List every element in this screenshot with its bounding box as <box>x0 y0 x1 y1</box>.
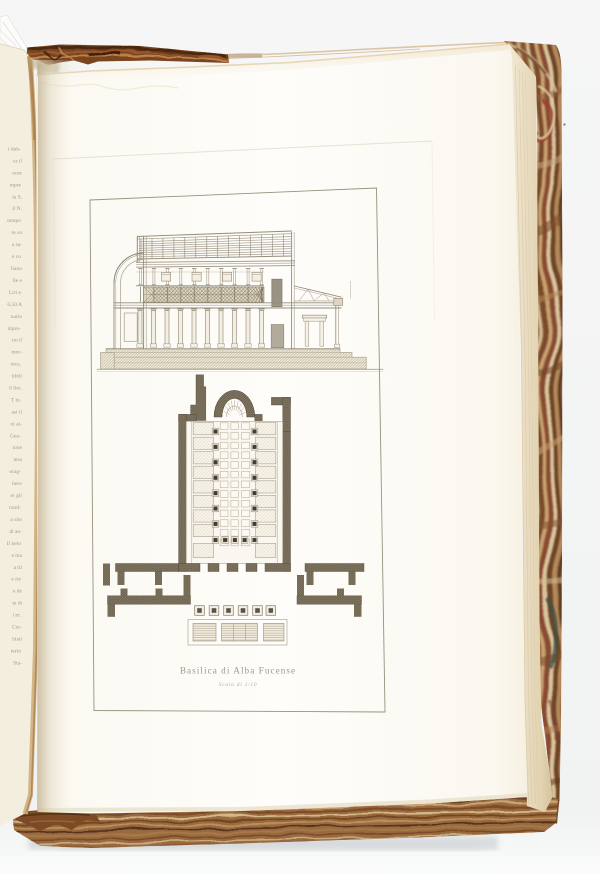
svg-text:Scala di 1/10: Scala di 1/10 <box>219 682 258 688</box>
svg-text:ca il: ca il <box>13 158 23 164</box>
svg-text:liano: liano <box>11 266 22 272</box>
svg-text:a sa-: a sa- <box>12 242 22 248</box>
svg-text:re su: re su <box>11 230 22 236</box>
svg-text:Basilica di Alba Fucense: Basilica di Alba Fucense <box>180 666 296 676</box>
svg-text:liero: liero <box>12 481 22 487</box>
svg-text:il N.: il N. <box>12 206 22 212</box>
svg-text:Cor-: Cor- <box>12 625 22 631</box>
svg-text:hiati: hiati <box>12 637 22 643</box>
svg-text:nica,: nica, <box>10 362 21 368</box>
svg-text:Gen-: Gen- <box>10 433 21 439</box>
svg-text:orag-: orag- <box>9 469 21 475</box>
svg-text:er gli: er gli <box>11 493 23 499</box>
svg-text:i dub-: i dub- <box>8 147 21 153</box>
svg-text:T in.: T in. <box>11 397 22 403</box>
svg-text:tesa: tesa <box>13 457 22 463</box>
svg-text:teriu: teriu <box>11 648 21 654</box>
svg-text:te di: te di <box>12 601 22 607</box>
svg-text:ione: ione <box>13 445 23 451</box>
svg-text:mpre: mpre <box>10 182 22 188</box>
svg-text:e de: e de <box>13 589 23 595</box>
svg-text:nario: nario <box>11 314 23 320</box>
svg-text:asi il: asi il <box>11 409 22 415</box>
svg-text:a til: a til <box>14 565 23 571</box>
svg-text:nord-: nord- <box>9 505 21 511</box>
svg-text:Liri e: Liri e <box>9 290 22 296</box>
svg-text:tibili: tibili <box>12 374 23 380</box>
svg-text:tempo: tempo <box>7 218 21 224</box>
svg-text:6,50 A: 6,50 A <box>7 302 22 308</box>
svg-text:mpro-: mpro- <box>8 326 22 332</box>
svg-text:a sito: a sito <box>10 517 22 523</box>
svg-text:Sta-: Sta- <box>13 660 22 666</box>
svg-text:ni al-: ni al- <box>11 421 23 427</box>
svg-text:la S.: la S. <box>12 194 22 200</box>
svg-text:Il belo: Il belo <box>7 541 21 547</box>
svg-text:mor-: mor- <box>11 350 22 356</box>
svg-text:di an-: di an- <box>9 529 22 535</box>
svg-text:e co: e co <box>12 254 21 260</box>
svg-text:e rie: e rie <box>11 577 21 583</box>
svg-text:no il: no il <box>12 338 22 344</box>
svg-text:lle e: lle e <box>13 278 23 284</box>
svg-text:i m.: i m. <box>12 613 21 619</box>
svg-text:nore: nore <box>12 170 22 176</box>
svg-text:e ma: e ma <box>11 553 22 559</box>
svg-text:0 lire.: 0 lire. <box>9 386 22 392</box>
